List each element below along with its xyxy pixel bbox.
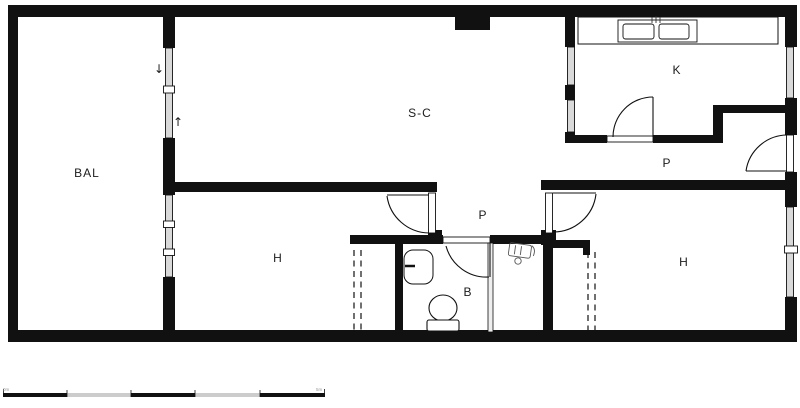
walls	[8, 5, 797, 342]
kitchen-glass-lower	[568, 100, 575, 132]
room-label-kitchen: K	[672, 63, 681, 77]
wall-right-seg	[785, 297, 797, 342]
entrance-door	[746, 135, 787, 171]
closet-block-right	[583, 240, 590, 255]
wall-hall-bedroom	[541, 180, 797, 190]
kitchen-sink	[618, 20, 697, 42]
toilet-bowl	[429, 295, 457, 321]
mullion	[164, 86, 175, 93]
bathroom-door	[446, 243, 490, 277]
room-label-bedroom-right: H	[679, 255, 689, 269]
bedroom-left-door	[387, 195, 429, 233]
bedroom-window-right-a	[787, 207, 794, 246]
wall-living-bedroom	[163, 182, 437, 192]
bathroom-door-threshold	[443, 237, 490, 243]
kitchen-glass-upper	[568, 47, 575, 85]
arrow-down-icon: ↓	[154, 62, 164, 76]
pillar	[455, 17, 490, 30]
bedroom-right-door	[553, 193, 596, 232]
scale-segment	[195, 393, 260, 397]
wall-left	[8, 5, 18, 342]
bedroom-window-right-b	[787, 253, 794, 297]
wall-wc-right	[543, 230, 553, 332]
mullion	[785, 246, 798, 253]
entrance-door-jamb	[787, 135, 794, 172]
balcony-window-lower	[166, 195, 173, 277]
scale-start-label: 0m	[3, 387, 10, 392]
scale-bar: 0m 5m	[3, 387, 325, 397]
floor-plan-drawing: BAL S-C K P P H H B ↓ ↑ 0m 5m	[0, 0, 800, 408]
scale-segment	[67, 393, 131, 397]
wall-bathroom-left	[395, 243, 403, 332]
wall-kitchen-left-seg	[565, 85, 575, 100]
room-label-balcony: BAL	[74, 166, 100, 180]
door-jamb-right-bedroom	[546, 193, 553, 233]
windows	[166, 47, 794, 297]
wall-kitchen-left-seg	[565, 17, 575, 47]
wall-right-seg	[785, 5, 797, 47]
door-jamb-left-bedroom	[429, 193, 436, 233]
balcony-divider-seg	[163, 17, 175, 48]
kitchen-door	[613, 97, 653, 137]
kitchen-window-right	[787, 47, 794, 98]
scale-end-label: 5m	[316, 387, 323, 392]
wall-kitchen-bottom-seg	[653, 135, 723, 143]
window-mullions	[164, 86, 798, 256]
scale-segment	[131, 393, 195, 397]
kitchen-door-threshold	[607, 136, 653, 142]
floor-plan: BAL S-C K P P H H B ↓ ↑ 0m 5m	[0, 0, 800, 408]
room-label-bedroom-left: H	[273, 251, 283, 265]
fixtures	[404, 16, 778, 331]
wall-right-seg	[785, 98, 797, 135]
scale-segment	[3, 393, 67, 397]
wall-hall-kitchen	[713, 105, 797, 113]
mullion	[164, 249, 175, 256]
room-label-living: S-C	[408, 106, 432, 120]
room-label-hall-right: P	[662, 156, 671, 170]
wall-kitchen-bottom-seg	[565, 135, 607, 143]
balcony-divider-seg	[163, 277, 175, 332]
closet-stub-right	[553, 240, 588, 248]
room-label-corridor: P	[478, 208, 487, 222]
scale-segment	[260, 393, 325, 397]
wc-fixture	[508, 243, 535, 259]
closets	[354, 250, 595, 330]
room-label-bathroom: B	[463, 285, 472, 299]
wc-fixture-drain	[515, 258, 521, 264]
toilet-tank	[427, 320, 459, 331]
arrow-up-icon: ↑	[173, 115, 183, 129]
wall-bathroom-top	[350, 235, 443, 244]
wall-top	[8, 5, 797, 17]
mullion	[164, 221, 175, 228]
